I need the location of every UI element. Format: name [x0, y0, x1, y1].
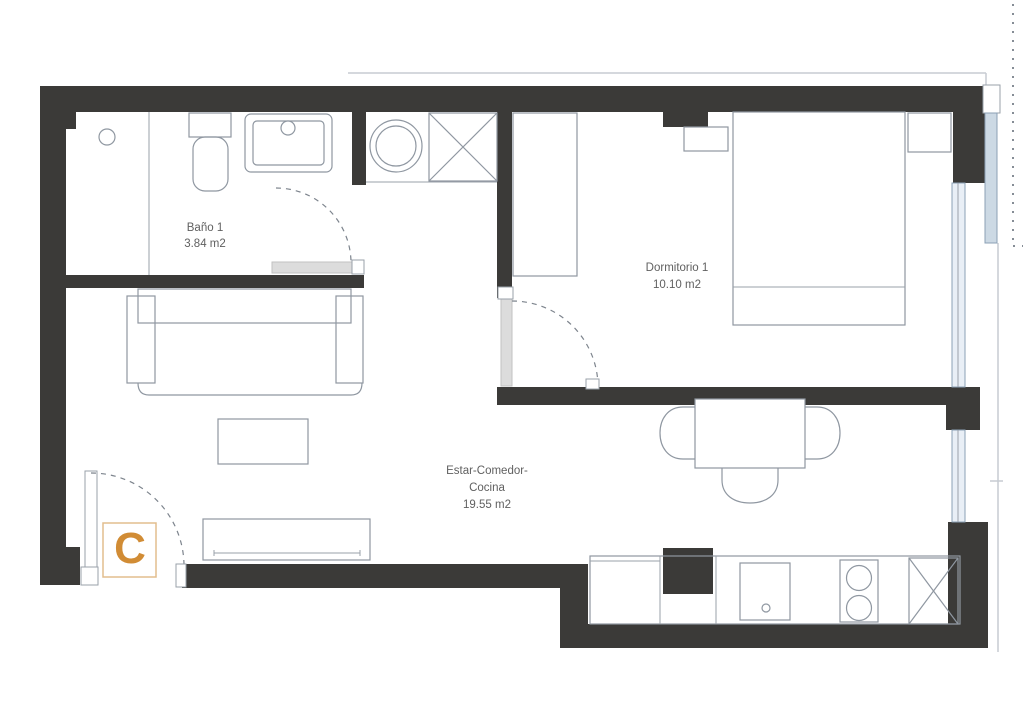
tv-sideboard	[203, 519, 370, 560]
toilet-cistern	[189, 113, 231, 137]
burner-top-icon	[847, 566, 872, 591]
living-name-line2-label: Cocina	[469, 482, 505, 494]
wall-notch-bathroom-corner	[63, 112, 76, 129]
sofa-armrest-left	[127, 296, 155, 383]
wall-segment-top	[40, 86, 992, 112]
living-area-label: 19.55 m2	[463, 499, 511, 511]
kitchen-sink-drain-icon	[762, 604, 770, 612]
wall-segment-living-bottom	[182, 564, 588, 588]
dining-chair-left	[660, 407, 697, 459]
wall-segment-left-step	[40, 547, 80, 585]
window-bedroom-outer	[985, 113, 997, 243]
bathroom-door-jamb	[352, 260, 364, 274]
shower-drain-icon	[99, 129, 115, 145]
bedroom-door-jamb-bottom	[586, 379, 599, 389]
entrance-label-group: C	[103, 523, 156, 577]
bathroom-name-label: Baño 1	[187, 222, 223, 234]
wall-segment-kitchen-bottom	[560, 624, 988, 648]
burner-bottom-icon	[847, 596, 872, 621]
wall-segment-right-between-windows	[946, 387, 980, 430]
wall-stub-bedroom-chimney	[663, 112, 708, 127]
bathroom-door-leaf	[272, 262, 353, 273]
roof-overhang-line	[348, 73, 986, 85]
balcony-edge-line	[990, 243, 1003, 652]
wall-segment-left	[40, 86, 66, 585]
coffee-table	[218, 419, 308, 464]
shaft-x-icon	[429, 113, 497, 181]
nightstand-left	[684, 127, 728, 151]
hall-closet	[366, 113, 497, 182]
wall-segment-bathroom-bottom	[40, 275, 364, 288]
wardrobe	[513, 113, 577, 276]
bedroom-area-label: 10.10 m2	[653, 279, 701, 291]
living-name-line1-label: Estar-Comedor-	[446, 465, 528, 477]
toilet-bowl	[193, 137, 228, 191]
bedroom-door-arc	[512, 301, 598, 387]
plot-boundary-dashed-line	[1013, 4, 1023, 246]
tv-icon	[214, 550, 360, 556]
bathroom-fixtures	[99, 112, 332, 275]
wall-stub-closet-left	[352, 112, 366, 185]
floor-plan-canvas: C Baño 1 3.84 m2 Dormitorio 1 10.10 m2 E…	[0, 0, 1024, 702]
dining-chair-bottom	[722, 466, 778, 503]
window-end-cap	[983, 85, 1000, 113]
bathroom-door-arc	[276, 188, 351, 263]
sofa-armrest-right	[336, 296, 363, 383]
wall-pillar-kitchen	[663, 548, 713, 594]
room-labels: Baño 1 3.84 m2 Dormitorio 1 10.10 m2 Est…	[184, 222, 708, 511]
dining-table	[695, 399, 805, 468]
sofa-backrest	[138, 289, 351, 323]
wall-segment-bedroom-left	[497, 112, 512, 298]
living-furniture	[127, 289, 370, 560]
dining-set	[660, 399, 840, 503]
nightstand-right	[908, 113, 951, 152]
bed	[733, 112, 905, 325]
bedroom-door-jamb-top	[498, 287, 513, 299]
dining-chair-right	[803, 407, 840, 459]
kitchen	[590, 556, 960, 624]
entrance-door-leaf	[85, 471, 97, 568]
washing-machine-icon	[370, 120, 422, 172]
kitchen-counter	[590, 556, 960, 624]
sink-faucet-icon	[281, 121, 295, 135]
bedroom-name-label: Dormitorio 1	[646, 262, 709, 274]
floor-plan-drawing: C Baño 1 3.84 m2 Dormitorio 1 10.10 m2 E…	[0, 0, 1024, 702]
bedroom-furniture	[513, 112, 951, 325]
bedroom-door-leaf	[501, 298, 512, 386]
washing-machine-drum-icon	[376, 126, 416, 166]
bathroom-area-label: 3.84 m2	[184, 238, 226, 250]
entrance-door-jamb-left	[81, 567, 98, 585]
sofa-seat-front	[138, 383, 362, 395]
entrance-label: C	[114, 524, 146, 573]
entrance-door-jamb-right	[176, 564, 186, 587]
